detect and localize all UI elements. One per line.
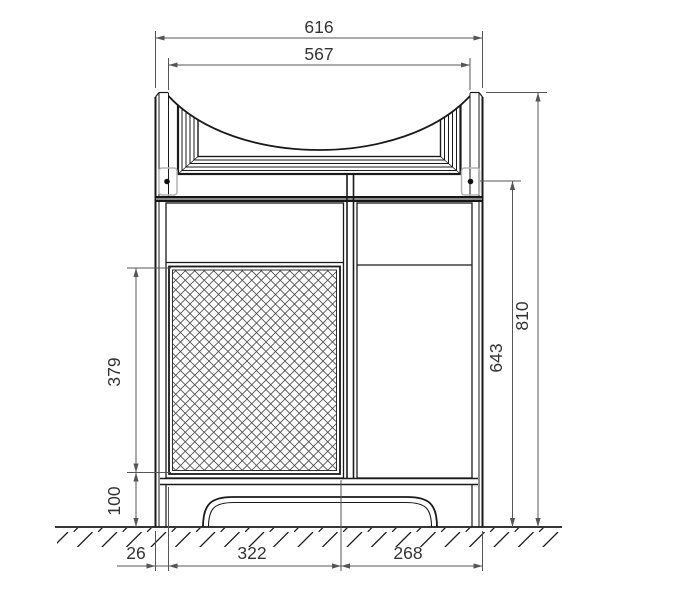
dim-label-height-below-basin: 643 [486,343,506,372]
left-screw-dot [164,179,170,185]
dim-label-left-compartment-width: 322 [237,543,266,563]
dim-label-side-panel-thickness: 26 [126,543,145,563]
cabinet-top-rail [155,196,483,202]
dim-label-basket-panel-height: 379 [104,357,124,386]
dim-label-overall-width: 616 [304,17,333,37]
dim-label-overall-height: 810 [512,301,532,330]
dim-label-plinth-height: 100 [104,486,124,515]
wicker-basket-panel [173,270,337,471]
dim-label-basin-inner-width: 567 [304,44,333,64]
right-screw-dot [468,179,474,185]
dim-label-right-compartment-width: 268 [393,543,422,563]
background [0,0,675,600]
vanity-technical-drawing: 616 567 810 643 [0,0,675,600]
drawing-page: 616 567 810 643 [0,0,675,600]
